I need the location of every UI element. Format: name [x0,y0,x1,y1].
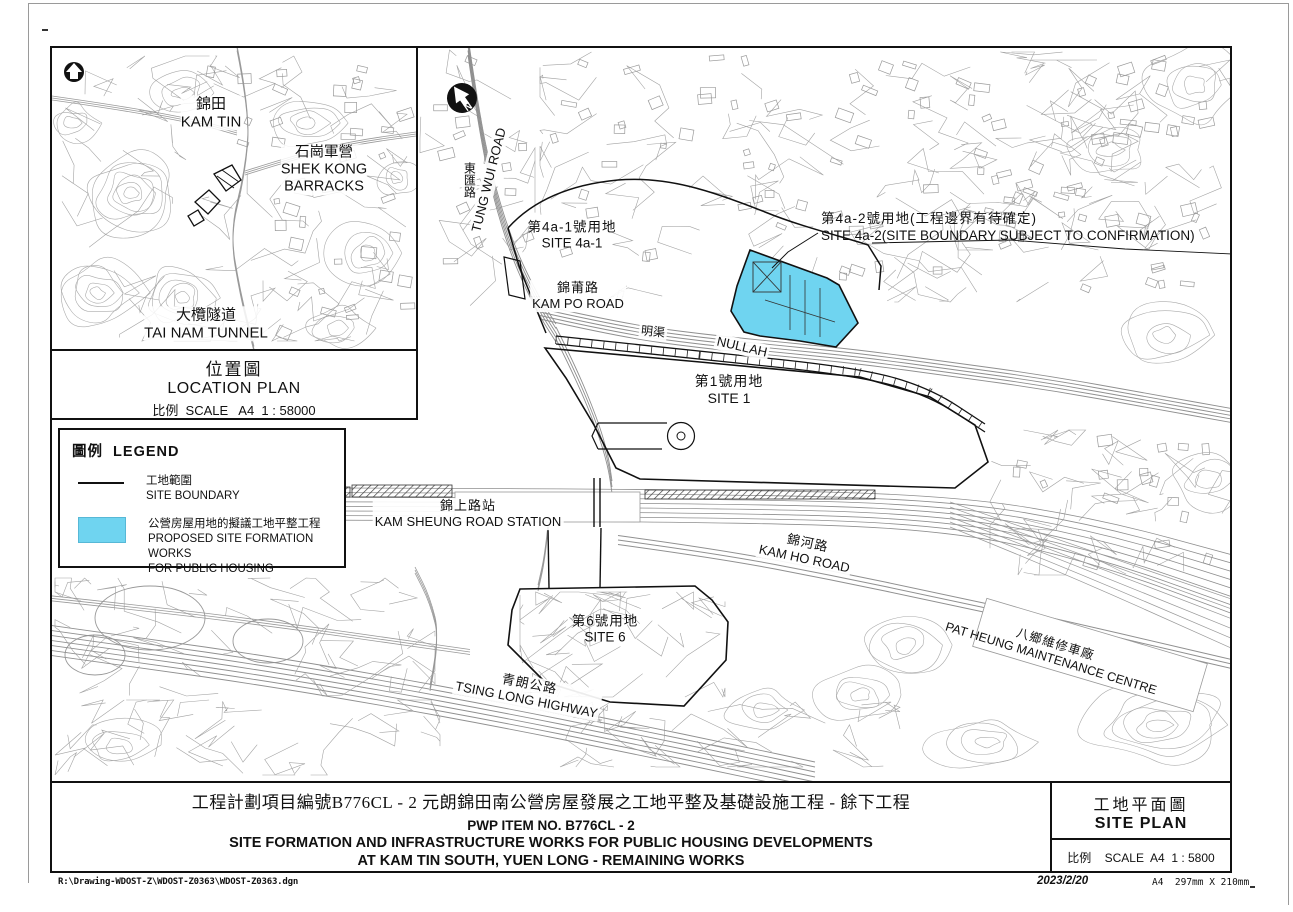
inset-label-tai-nam: 大欖隧道 TAI NAM TUNNEL [144,306,268,341]
sheet-title-en: SITE PLAN [1052,815,1230,833]
legend: 圖例 LEGEND 工地範圍 SITE BOUNDARY 公營房屋用地的擬議工地… [58,428,346,568]
location-plan-canvas [52,48,416,349]
project-title-en-1: SITE FORMATION AND INFRASTRUCTURE WORKS … [52,835,1050,851]
site-label-6: 第6號用地 SITE 6 [572,614,639,647]
site-label-4a-2: 第4a-2號用地(工程邊界有待確定) SITE 4a-2(SITE BOUNDA… [821,210,1195,244]
location-plan-map: 錦田 KAM TIN 石崗軍營 SHEK KONG BARRACKS 大欖隧道 … [52,48,416,351]
file-path: R:\Drawing-WDOST-Z\WDOST-Z0363\WDOST-Z03… [58,877,298,887]
registration-dash-bottomright [1250,886,1255,888]
title-block: 工程計劃項目編號B776CL - 2 元朗錦田南公營房屋發展之工地平整及基礎設施… [50,781,1232,873]
site-label-1: 第1號用地 SITE 1 [695,373,764,407]
location-plan-scale: 比例 SCALE A4 1 : 58000 [52,400,416,419]
location-plan-title-en: LOCATION PLAN [52,380,416,398]
inset-label-shek-kong: 石崗軍營 SHEK KONG BARRACKS [281,144,367,195]
proposed-works-fill-swatch [78,517,126,543]
location-plan-caption: 位置圖 LOCATION PLAN 比例 SCALE A4 1 : 58000 [52,351,416,422]
site-boundary-line-swatch [78,482,124,484]
site-label-4a-1: 第4a-1號用地 SITE 4a-1 [527,220,616,253]
legend-item-site-boundary: 工地範圍 SITE BOUNDARY [72,474,332,504]
sheet-scale: 比例 SCALE A4 1 : 5800 [1052,840,1230,866]
road-label-kam-po: 錦莆路 KAM PO ROAD [530,280,626,312]
inset-label-kam-tin: 錦田 KAM TIN [181,95,242,130]
location-plan-inset: 錦田 KAM TIN 石崗軍營 SHEK KONG BARRACKS 大欖隧道 … [50,46,418,420]
title-block-main: 工程計劃項目編號B776CL - 2 元朗錦田南公營房屋發展之工地平整及基礎設施… [52,783,1050,871]
pwp-item-no: PWP ITEM NO. B776CL - 2 [52,818,1050,833]
project-title-en-2: AT KAM TIN SOUTH, YUEN LONG - REMAINING … [52,853,1050,869]
location-plan-title-zh: 位置圖 [52,355,416,380]
station-label: 錦上路站 KAM SHEUNG ROAD STATION [373,498,564,530]
sheet-title-cell: 工地平面圖 SITE PLAN [1052,783,1230,840]
drawing-sheet: N 東匯路 TUNG WUI ROAD 第4a-1號用地 SITE 4a-1 第… [0,0,1293,912]
registration-dash-topleft [42,29,48,31]
project-title-zh: 工程計劃項目編號B776CL - 2 元朗錦田南公營房屋發展之工地平整及基礎設施… [52,788,1050,813]
legend-title: 圖例 LEGEND [72,440,332,461]
paper-size: A4 297mm X 210mm [1152,877,1249,888]
sheet-title-zh: 工地平面圖 [1052,791,1230,815]
date-stamp: 2023/2/20 [1037,875,1088,887]
nullah-label-zh: 明渠 [638,323,667,340]
legend-item-proposed-works: 公營房屋用地的擬議工地平整工程 PROPOSED SITE FORMATION … [72,517,332,577]
road-label-tung-wui-zh: 東匯路 [462,162,477,198]
title-block-right: 工地平面圖 SITE PLAN 比例 SCALE A4 1 : 5800 [1050,783,1230,871]
